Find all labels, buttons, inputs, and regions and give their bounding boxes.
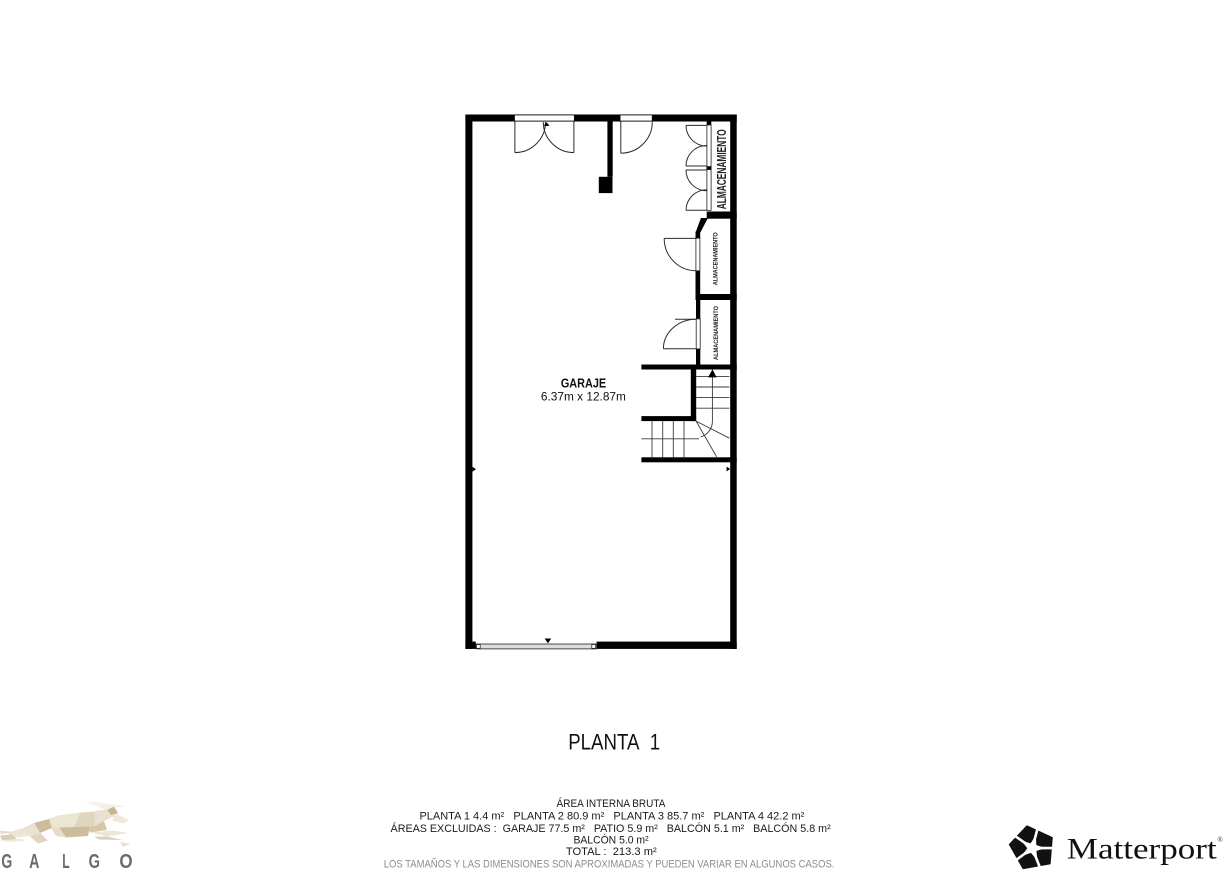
svg-text:Matterport: Matterport (1067, 832, 1218, 865)
svg-text:G: G (89, 850, 100, 873)
svg-text:ALMACENAMIENTO: ALMACENAMIENTO (713, 306, 720, 360)
svg-text:ALMACENAMIENTO: ALMACENAMIENTO (714, 129, 729, 209)
svg-text:LOS TAMAÑOS Y LAS DIMENSIONES: LOS TAMAÑOS Y LAS DIMENSIONES SON APROXI… (384, 858, 835, 871)
svg-text:TOTAL : 213.3 m²: TOTAL : 213.3 m² (566, 846, 657, 858)
svg-text:ÁREAS EXCLUIDAS : GARAJE 77.5: ÁREAS EXCLUIDAS : GARAJE 77.5 m² PATIO 5… (391, 822, 831, 835)
svg-text:ALMACENAMIENTO: ALMACENAMIENTO (712, 232, 719, 285)
svg-text:A: A (29, 850, 39, 873)
svg-text:6.37m x 12.87m: 6.37m x 12.87m (541, 389, 626, 403)
svg-text:BALCÓN 5.0 m²: BALCÓN 5.0 m² (573, 834, 648, 847)
svg-text:G: G (1, 850, 12, 873)
svg-text:O: O (119, 850, 132, 873)
svg-text:GARAJE: GARAJE (561, 376, 606, 390)
svg-text:®: ® (1218, 836, 1224, 844)
svg-text:PLANTA 1: PLANTA 1 (568, 729, 660, 754)
svg-text:L: L (62, 850, 69, 873)
svg-text:PLANTA 1 4.4 m² PLANTA 2 80.: PLANTA 1 4.4 m² PLANTA 2 80.9 m² PLANTA … (419, 810, 804, 822)
svg-text:ÁREA INTERNA BRUTA: ÁREA INTERNA BRUTA (557, 797, 666, 810)
